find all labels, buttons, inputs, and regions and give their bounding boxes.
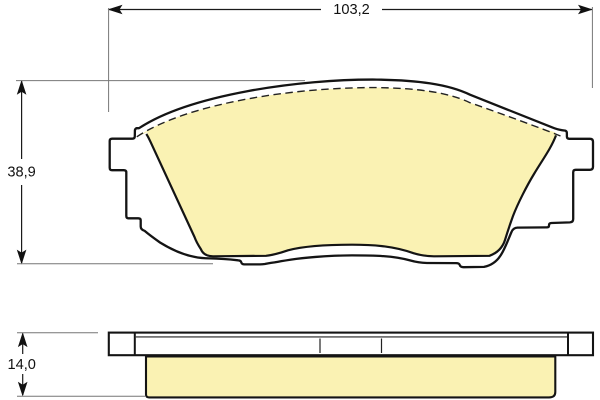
svg-text:14,0: 14,0 — [7, 357, 35, 373]
svg-text:103,2: 103,2 — [333, 2, 370, 18]
svg-text:38,9: 38,9 — [7, 165, 35, 181]
